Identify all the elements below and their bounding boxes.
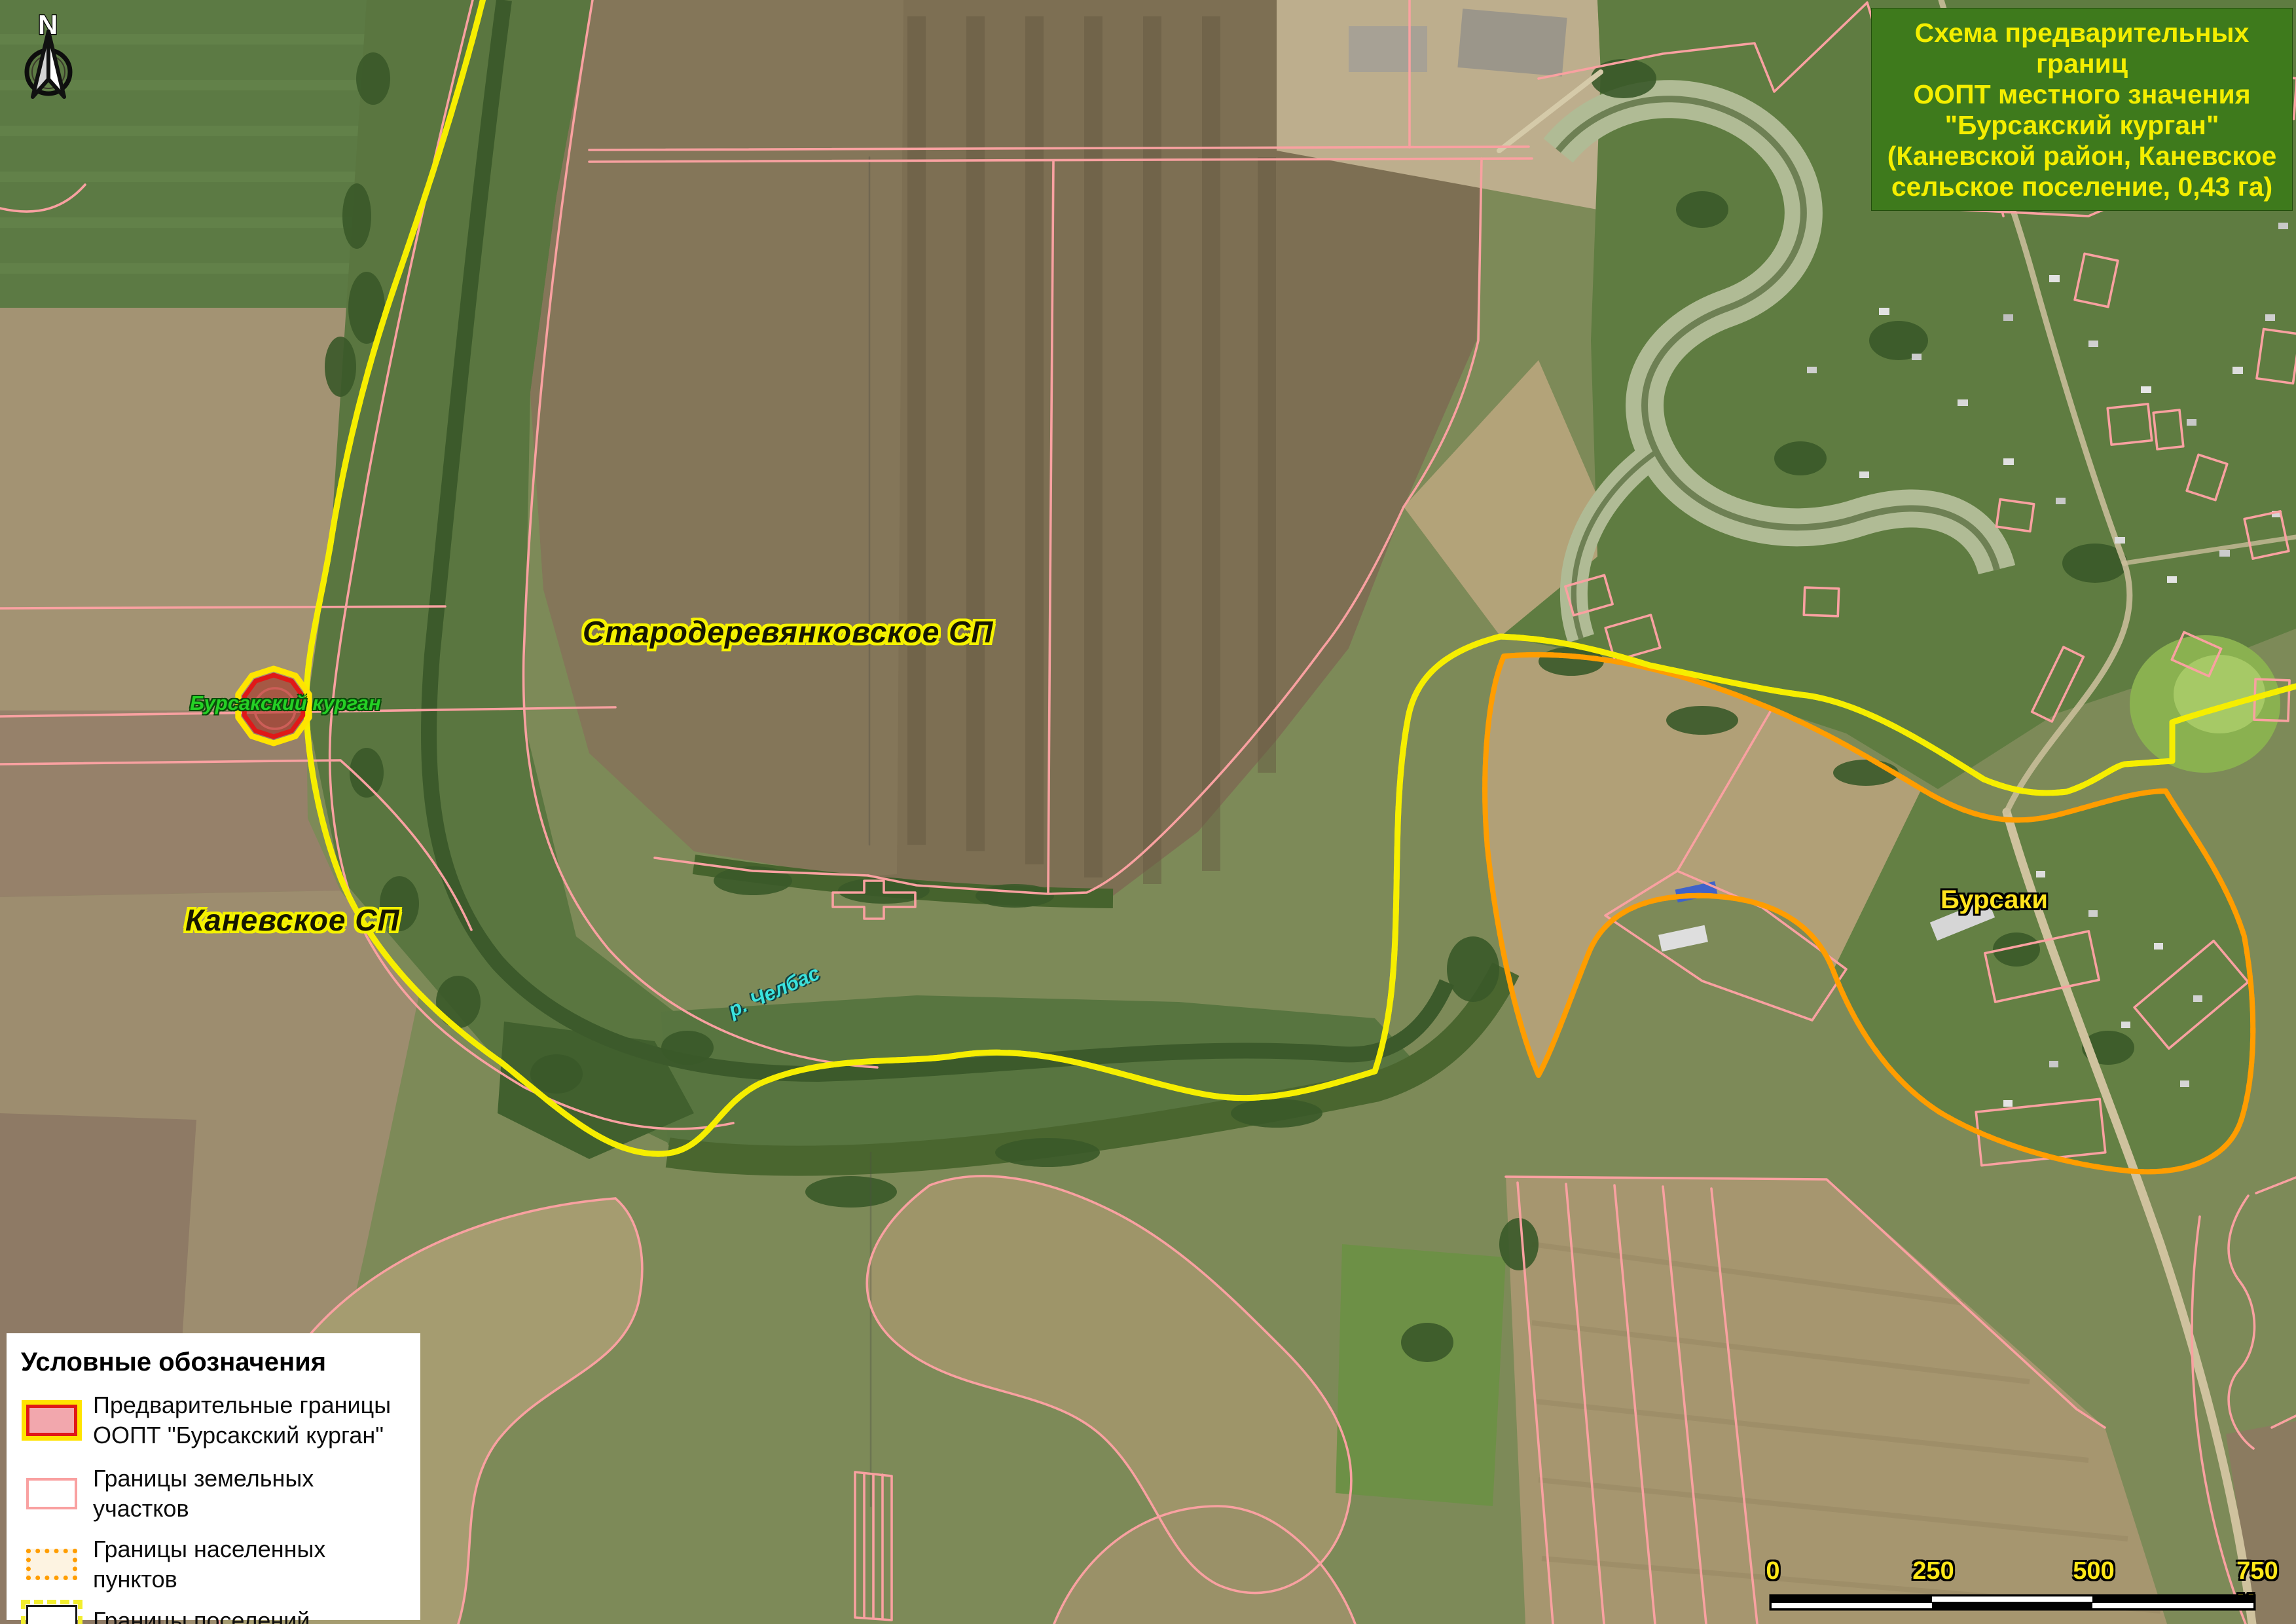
legend-label-municipalities: Границы поселений [93,1606,310,1624]
legend-box: Условные обозначения Предварительные гра… [7,1333,420,1620]
label-staroderevyankovskoe-sp: Стародеревянковское СП [583,614,993,650]
label-bursakskiy-kurgan: Бурсакский курган [190,692,381,715]
scale-tick-500: 500 [2073,1557,2114,1585]
map-title-box: Схема предварительных границ ООПТ местно… [1871,8,2293,211]
scale-bar: 0 250 500 750 м [1769,1557,2267,1614]
legend-item-oopt: Предварительные границы ООПТ "Бурсакский… [21,1390,407,1450]
legend-swatch-settlements [26,1549,77,1580]
title-line-2: ООПТ местного значения [1877,79,2287,110]
north-arrow-icon: N [14,9,82,112]
label-bursaki-village: Бурсаки [1941,885,2048,915]
legend-label-oopt-line1: Предварительные границы [93,1390,391,1420]
scale-tick-250: 250 [1912,1557,1954,1585]
title-line-4: (Каневской район, Каневское [1877,141,2287,172]
legend-title: Условные обозначения [21,1348,407,1377]
map-scheme-canvas: Стародеревянковское СП Каневское СП Бурс… [0,0,2296,1624]
scale-bar-graphic [1769,1594,2256,1611]
legend-item-municipalities: Границы поселений [21,1605,407,1624]
title-line-1: Схема предварительных границ [1877,18,2287,79]
label-kanevskoye-sp: Каневское СП [185,902,400,938]
title-line-3: "Бурсакский курган" [1877,110,2287,141]
legend-label-settlements: Границы населенных пунктов [93,1534,407,1595]
legend-label-parcels: Границы земельных участков [93,1464,407,1524]
legend-swatch-oopt [26,1405,77,1436]
legend-swatch-municipalities [26,1605,77,1624]
title-line-5: сельское поселение, 0,43 га) [1877,172,2287,202]
legend-label-oopt-line2: ООПТ "Бурсакский курган" [93,1420,391,1450]
legend-swatch-parcels [26,1478,77,1509]
legend-item-parcels: Границы земельных участков [21,1464,407,1524]
scale-tick-0: 0 [1766,1557,1779,1585]
legend-item-settlements: Границы населенных пунктов [21,1534,407,1595]
